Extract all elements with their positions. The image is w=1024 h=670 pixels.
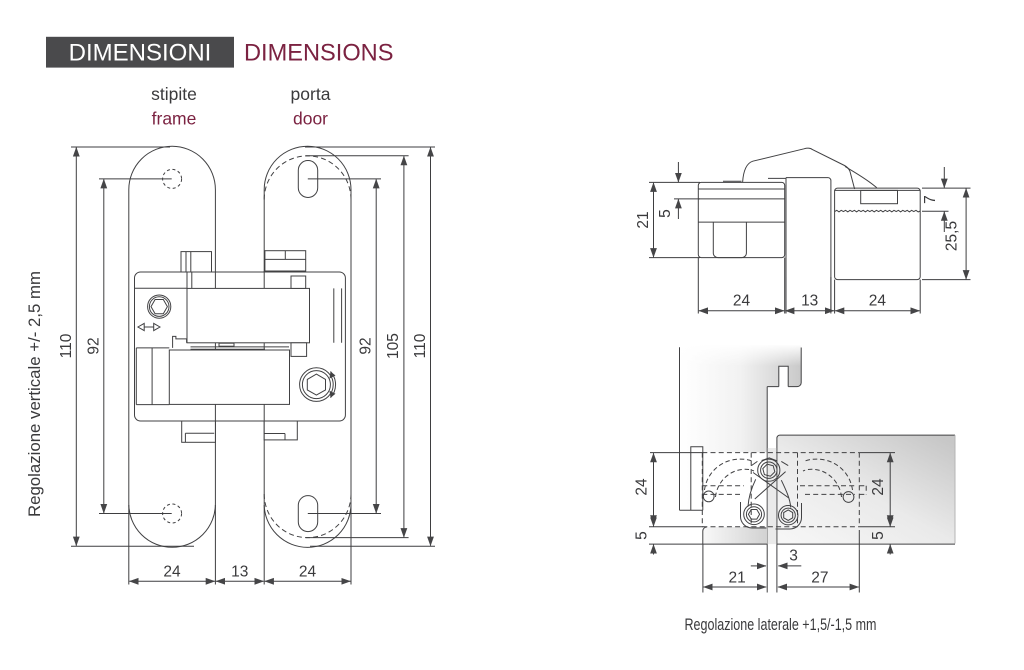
svg-text:Regolazione verticale +/- 2,5: Regolazione verticale +/- 2,5 mm xyxy=(25,271,44,517)
svg-text:21: 21 xyxy=(728,570,745,587)
svg-text:7: 7 xyxy=(922,195,939,204)
svg-text:24: 24 xyxy=(163,564,181,581)
svg-text:24: 24 xyxy=(869,293,887,310)
svg-text:24: 24 xyxy=(634,478,651,496)
svg-text:porta: porta xyxy=(291,84,331,104)
svg-text:stipite: stipite xyxy=(151,84,197,104)
svg-text:5: 5 xyxy=(657,209,674,218)
svg-text:105: 105 xyxy=(385,333,402,359)
svg-text:24: 24 xyxy=(299,564,317,581)
svg-text:21: 21 xyxy=(635,211,652,228)
svg-text:frame: frame xyxy=(152,109,197,129)
svg-text:13: 13 xyxy=(231,564,248,581)
svg-text:3: 3 xyxy=(789,548,798,565)
svg-text:13: 13 xyxy=(801,293,818,310)
svg-text:92: 92 xyxy=(85,337,102,354)
svg-text:24: 24 xyxy=(870,478,887,496)
svg-text:Regolazione laterale +1,5/-1,5: Regolazione laterale +1,5/-1,5 mm xyxy=(685,615,877,634)
svg-text:110: 110 xyxy=(58,333,75,358)
svg-text:DIMENSIONI: DIMENSIONI xyxy=(69,40,212,67)
svg-text:5: 5 xyxy=(870,531,887,540)
svg-text:27: 27 xyxy=(811,570,828,587)
svg-text:door: door xyxy=(293,109,328,129)
svg-text:110: 110 xyxy=(412,333,429,358)
svg-text:24: 24 xyxy=(733,293,751,310)
svg-text:25,5: 25,5 xyxy=(943,221,960,251)
svg-text:DIMENSIONS: DIMENSIONS xyxy=(244,41,393,67)
svg-text:92: 92 xyxy=(358,337,375,354)
svg-text:5: 5 xyxy=(634,531,651,540)
